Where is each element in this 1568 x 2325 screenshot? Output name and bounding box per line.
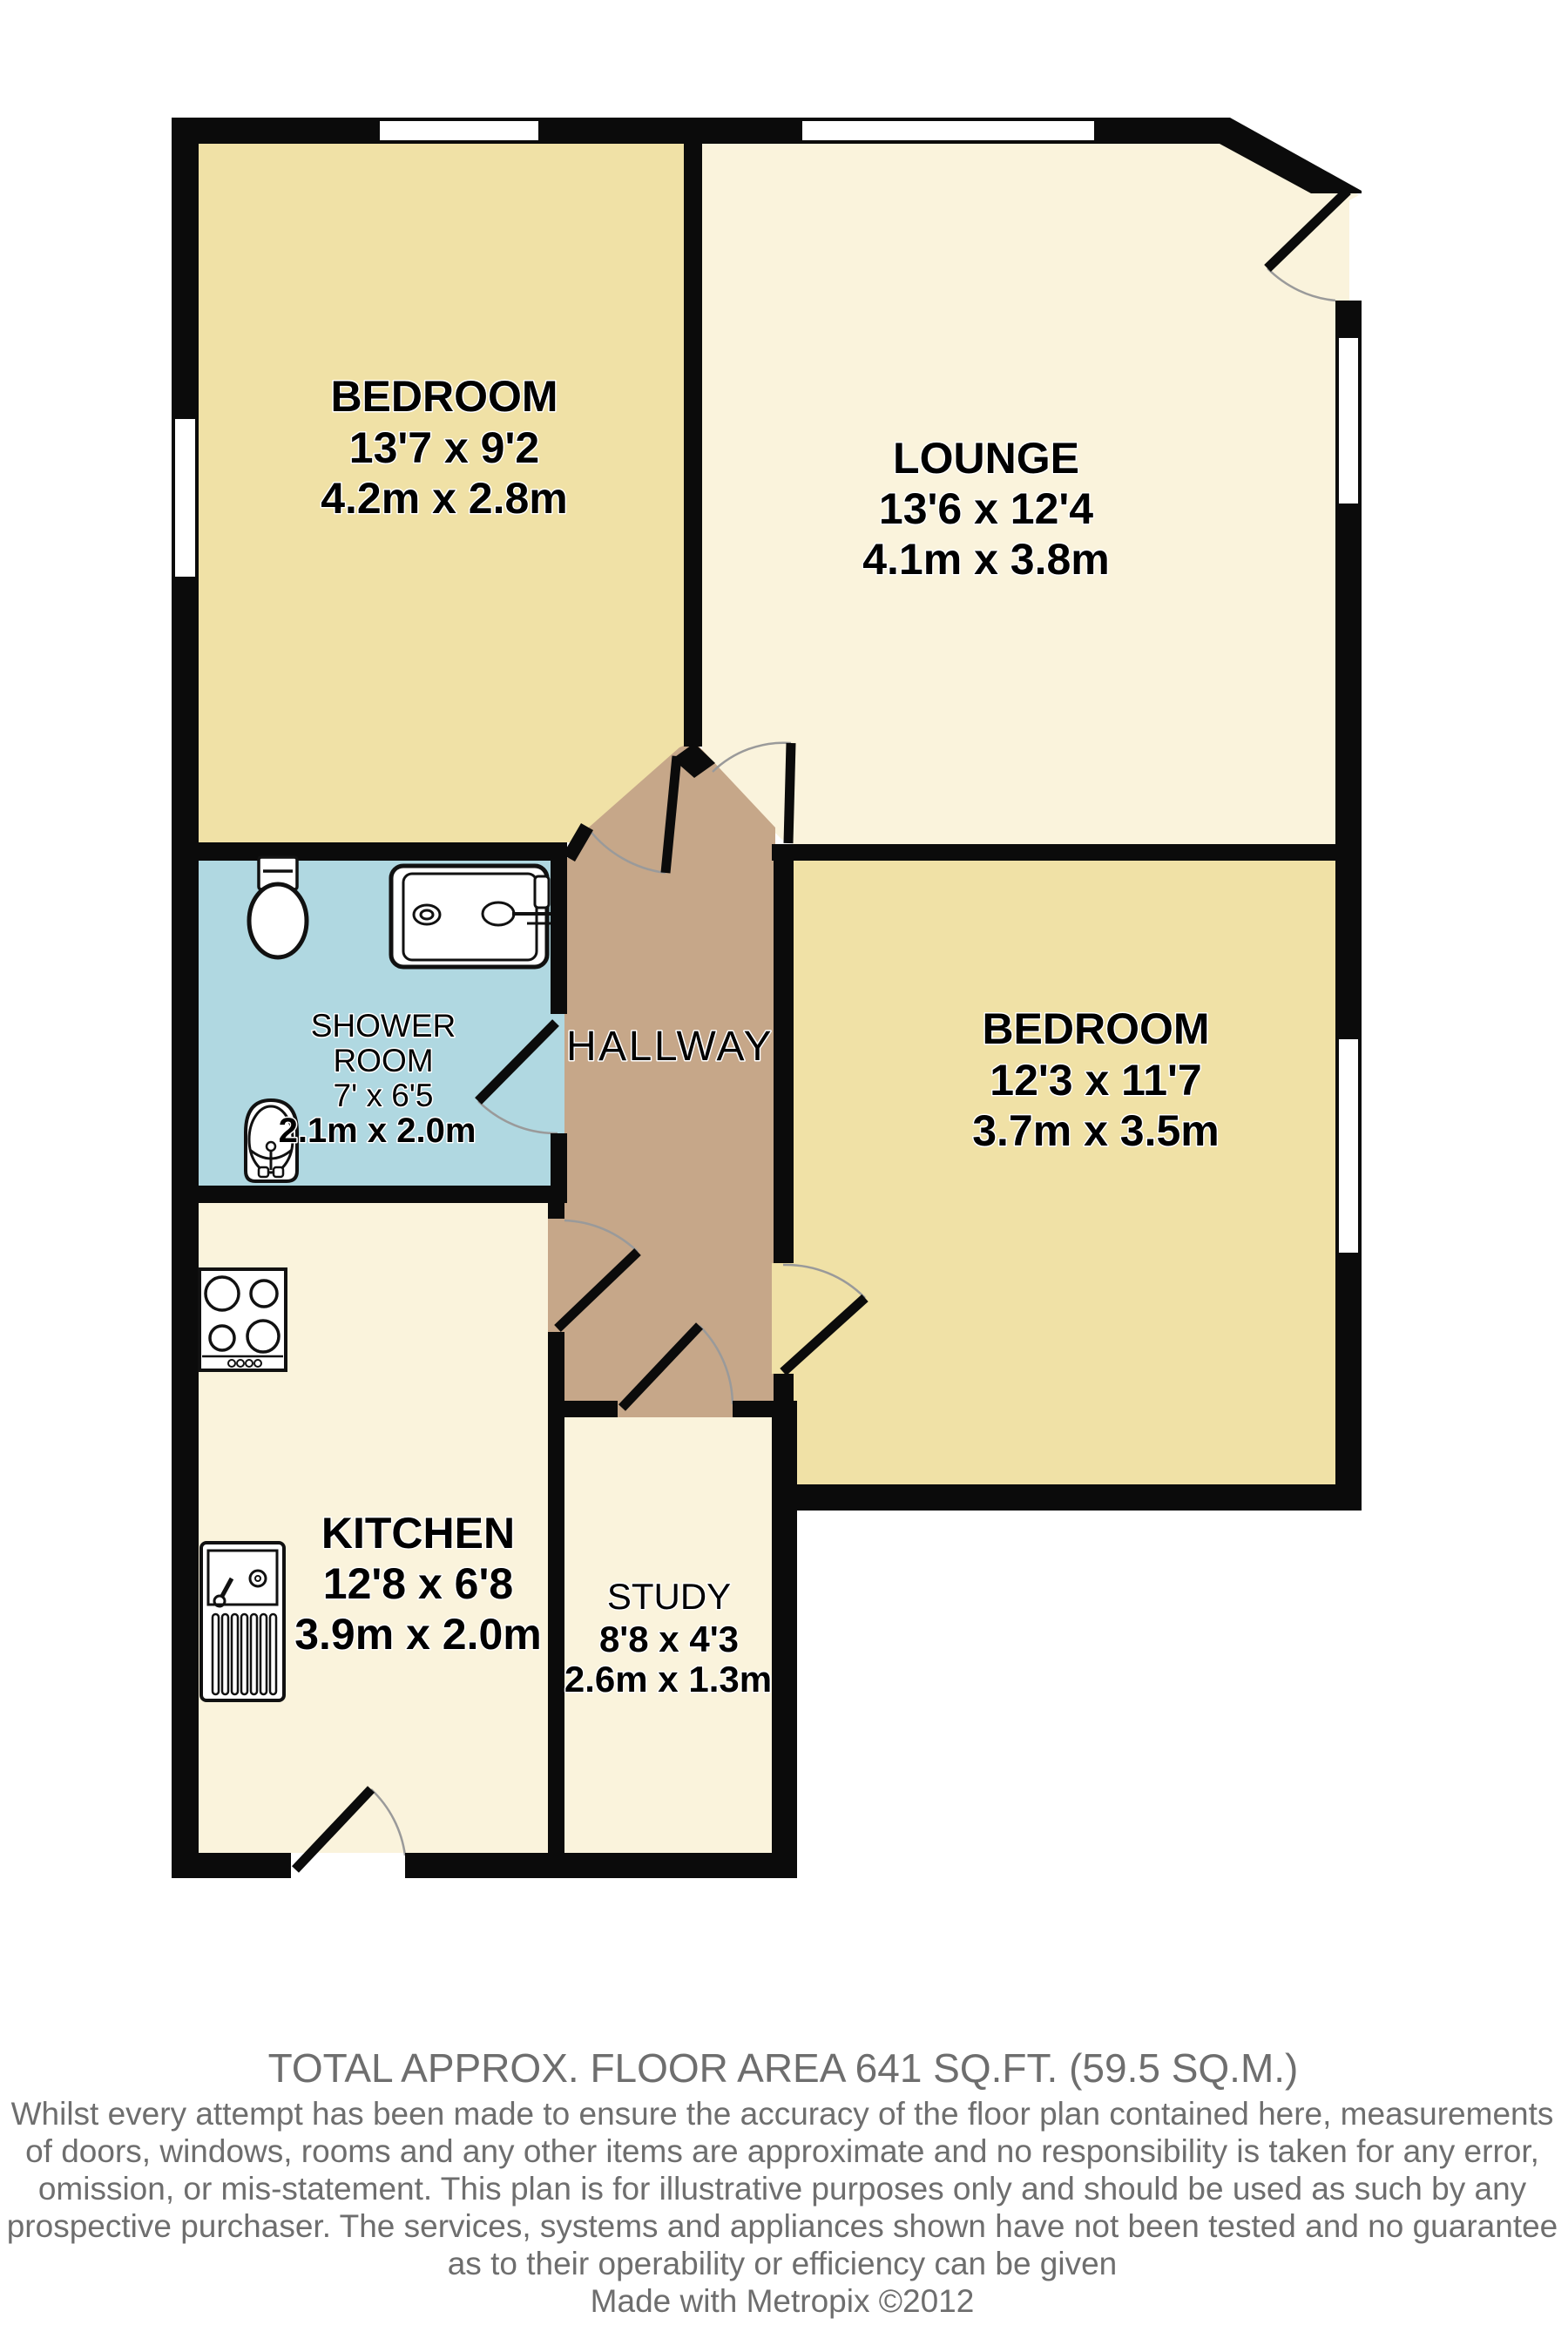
- svg-text:2.1m x 2.0m: 2.1m x 2.0m: [279, 1112, 476, 1150]
- svg-text:prospective purchaser. The ser: prospective purchaser. The services, sys…: [7, 2208, 1558, 2244]
- svg-text:as to their operability or eff: as to their operability or efficiency ca…: [448, 2246, 1118, 2281]
- svg-text:2.6m x 1.3m: 2.6m x 1.3m: [564, 1659, 772, 1700]
- svg-text:ROOM: ROOM: [333, 1043, 433, 1078]
- svg-text:4.2m x 2.8m: 4.2m x 2.8m: [321, 474, 568, 523]
- svg-text:12'8 x 6'8: 12'8 x 6'8: [323, 1559, 513, 1608]
- svg-text:HALLWAY: HALLWAY: [566, 1024, 774, 1070]
- svg-text:3.9m x 2.0m: 3.9m x 2.0m: [294, 1610, 542, 1659]
- svg-text:4.1m x 3.8m: 4.1m x 3.8m: [862, 535, 1110, 584]
- svg-text:of doors, windows, rooms and a: of doors, windows, rooms and any other i…: [25, 2133, 1539, 2169]
- svg-text:8'8 x 4'3: 8'8 x 4'3: [599, 1619, 739, 1659]
- svg-text:12'3 x 11'7: 12'3 x 11'7: [990, 1056, 1201, 1105]
- svg-text:Whilst every attempt has been: Whilst every attempt has been made to en…: [11, 2096, 1554, 2132]
- svg-text:BEDROOM: BEDROOM: [330, 372, 558, 421]
- svg-text:13'7 x 9'2: 13'7 x 9'2: [349, 423, 539, 472]
- svg-text:13'6 x 12'4: 13'6 x 12'4: [879, 484, 1093, 533]
- svg-text:3.7m x 3.5m: 3.7m x 3.5m: [972, 1106, 1220, 1155]
- svg-text:KITCHEN: KITCHEN: [321, 1509, 515, 1558]
- svg-text:LOUNGE: LOUNGE: [893, 434, 1079, 483]
- svg-text:BEDROOM: BEDROOM: [982, 1004, 1209, 1053]
- svg-text:SHOWER: SHOWER: [311, 1008, 456, 1044]
- svg-text:TOTAL APPROX. FLOOR AREA 641 S: TOTAL APPROX. FLOOR AREA 641 SQ.FT. (59.…: [268, 2045, 1299, 2091]
- svg-text:STUDY: STUDY: [607, 1576, 731, 1617]
- svg-text:7' x 6'5: 7' x 6'5: [334, 1078, 434, 1113]
- svg-text:omission, or mis-statement. Th: omission, or mis-statement. This plan is…: [38, 2171, 1527, 2207]
- svg-text:Made with Metropix ©2012: Made with Metropix ©2012: [591, 2283, 975, 2319]
